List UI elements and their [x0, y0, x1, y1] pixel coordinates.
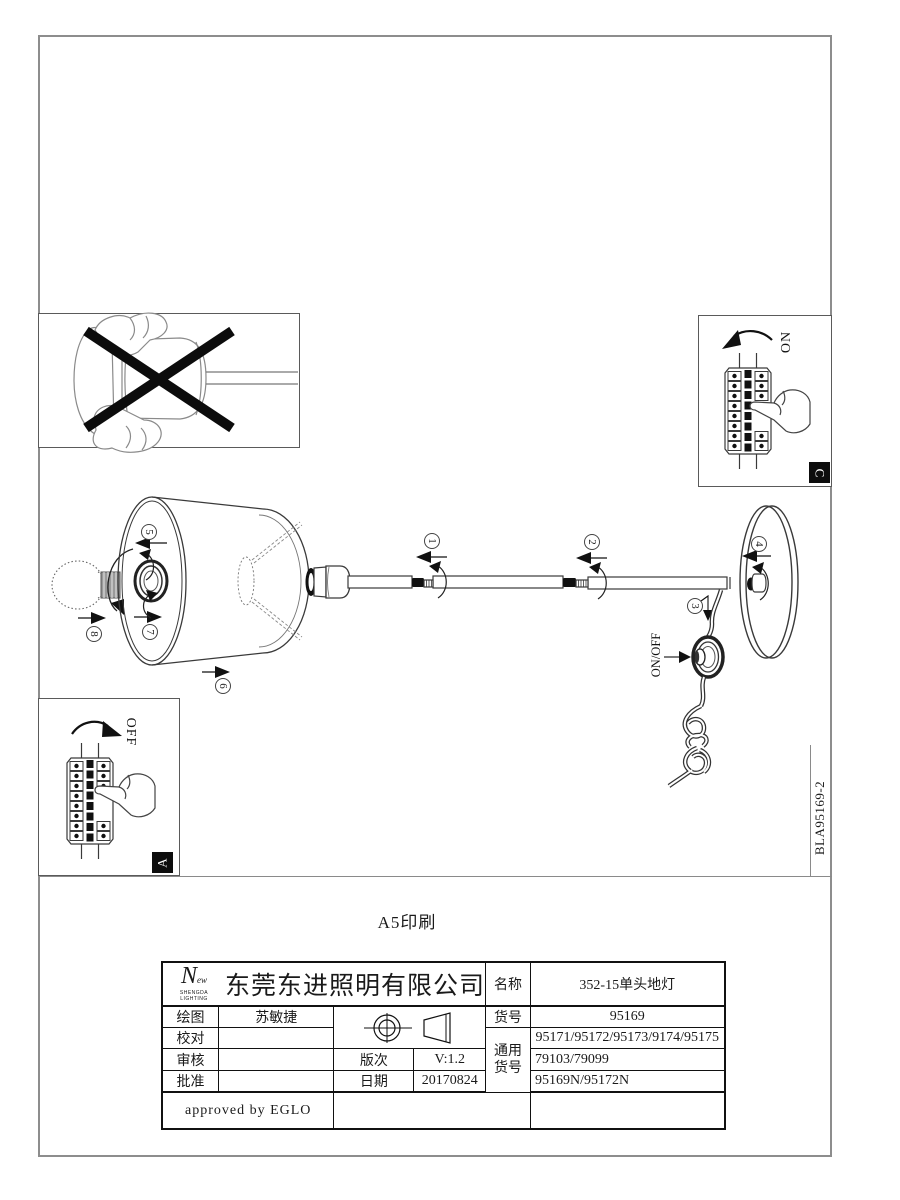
empty-cell [334, 1092, 531, 1129]
company-name: 东莞东进照明有限公司 [225, 966, 485, 1002]
approve-label: 批准 [162, 1071, 219, 1093]
common-label-line2: 货号 [486, 1060, 530, 1077]
drawing-code: BLA95169-2 [812, 763, 828, 873]
company-cell: New SHENGDA LIGHTING 东莞东进照明有限公司 [162, 962, 486, 1006]
callout-8: 8 [86, 626, 102, 642]
name-value: 352-15单头地灯 [531, 962, 725, 1006]
instruction-sheet: ON OFF ON/OFF BLA95169-2 C A 1 2 3 4 5 6… [0, 0, 900, 1200]
review-value [219, 1049, 334, 1071]
first-angle-projection-icon [360, 1010, 460, 1046]
callout-4: 4 [751, 536, 767, 552]
projection-symbol-cell [334, 1006, 486, 1049]
section-letter-c-badge: C [809, 462, 830, 483]
date-value: 20170824 [414, 1071, 486, 1093]
logo-script-n: N [181, 963, 197, 989]
on-label: ON [779, 327, 795, 357]
code-strip-line [810, 745, 811, 876]
review-label: 审核 [162, 1049, 219, 1071]
item-value: 95169 [531, 1006, 725, 1028]
callout-2: 2 [584, 534, 600, 550]
callout-7: 7 [142, 624, 158, 640]
common-value-1: 95171/95172/95173/9174/95175 [531, 1028, 725, 1049]
section-letter-a-badge: A [152, 852, 173, 873]
version-label: 版次 [334, 1049, 414, 1071]
approve-value [219, 1071, 334, 1093]
letter-c: C [811, 468, 827, 477]
common-value-2: 79103/79099 [531, 1049, 725, 1071]
company-logo: New SHENGDA LIGHTING [169, 966, 219, 1002]
check-value [219, 1028, 334, 1049]
print-note: A5印刷 [352, 908, 462, 933]
name-label: 名称 [486, 962, 531, 1006]
check-label: 校对 [162, 1028, 219, 1049]
draw-value: 苏敏捷 [219, 1006, 334, 1028]
callout-6: 6 [215, 678, 231, 694]
logo-script-ew: ew [197, 975, 207, 985]
version-value: V:1.2 [414, 1049, 486, 1071]
logo-line2: LIGHTING [169, 996, 219, 1002]
off-label: OFF [122, 714, 138, 750]
letter-a: A [154, 858, 170, 867]
common-value-3: 95169N/95172N [531, 1071, 725, 1093]
callout-3: 3 [687, 598, 703, 614]
common-label-line1: 通用 [486, 1043, 530, 1060]
callout-5: 5 [141, 524, 157, 540]
common-item-label: 通用 货号 [486, 1028, 531, 1093]
item-label: 货号 [486, 1006, 531, 1028]
off-instruction-box [38, 698, 180, 876]
drawing-area-bottom-line [38, 876, 832, 877]
title-block: New SHENGDA LIGHTING 东莞东进照明有限公司 名称 352-1… [161, 961, 726, 1130]
empty-cell [531, 1092, 725, 1129]
date-label: 日期 [334, 1071, 414, 1093]
approved-note: approved by EGLO [162, 1092, 334, 1129]
onoff-switch-label: ON/OFF [649, 627, 663, 683]
callout-1: 1 [424, 533, 440, 549]
warning-box [38, 313, 300, 448]
draw-label: 绘图 [162, 1006, 219, 1028]
